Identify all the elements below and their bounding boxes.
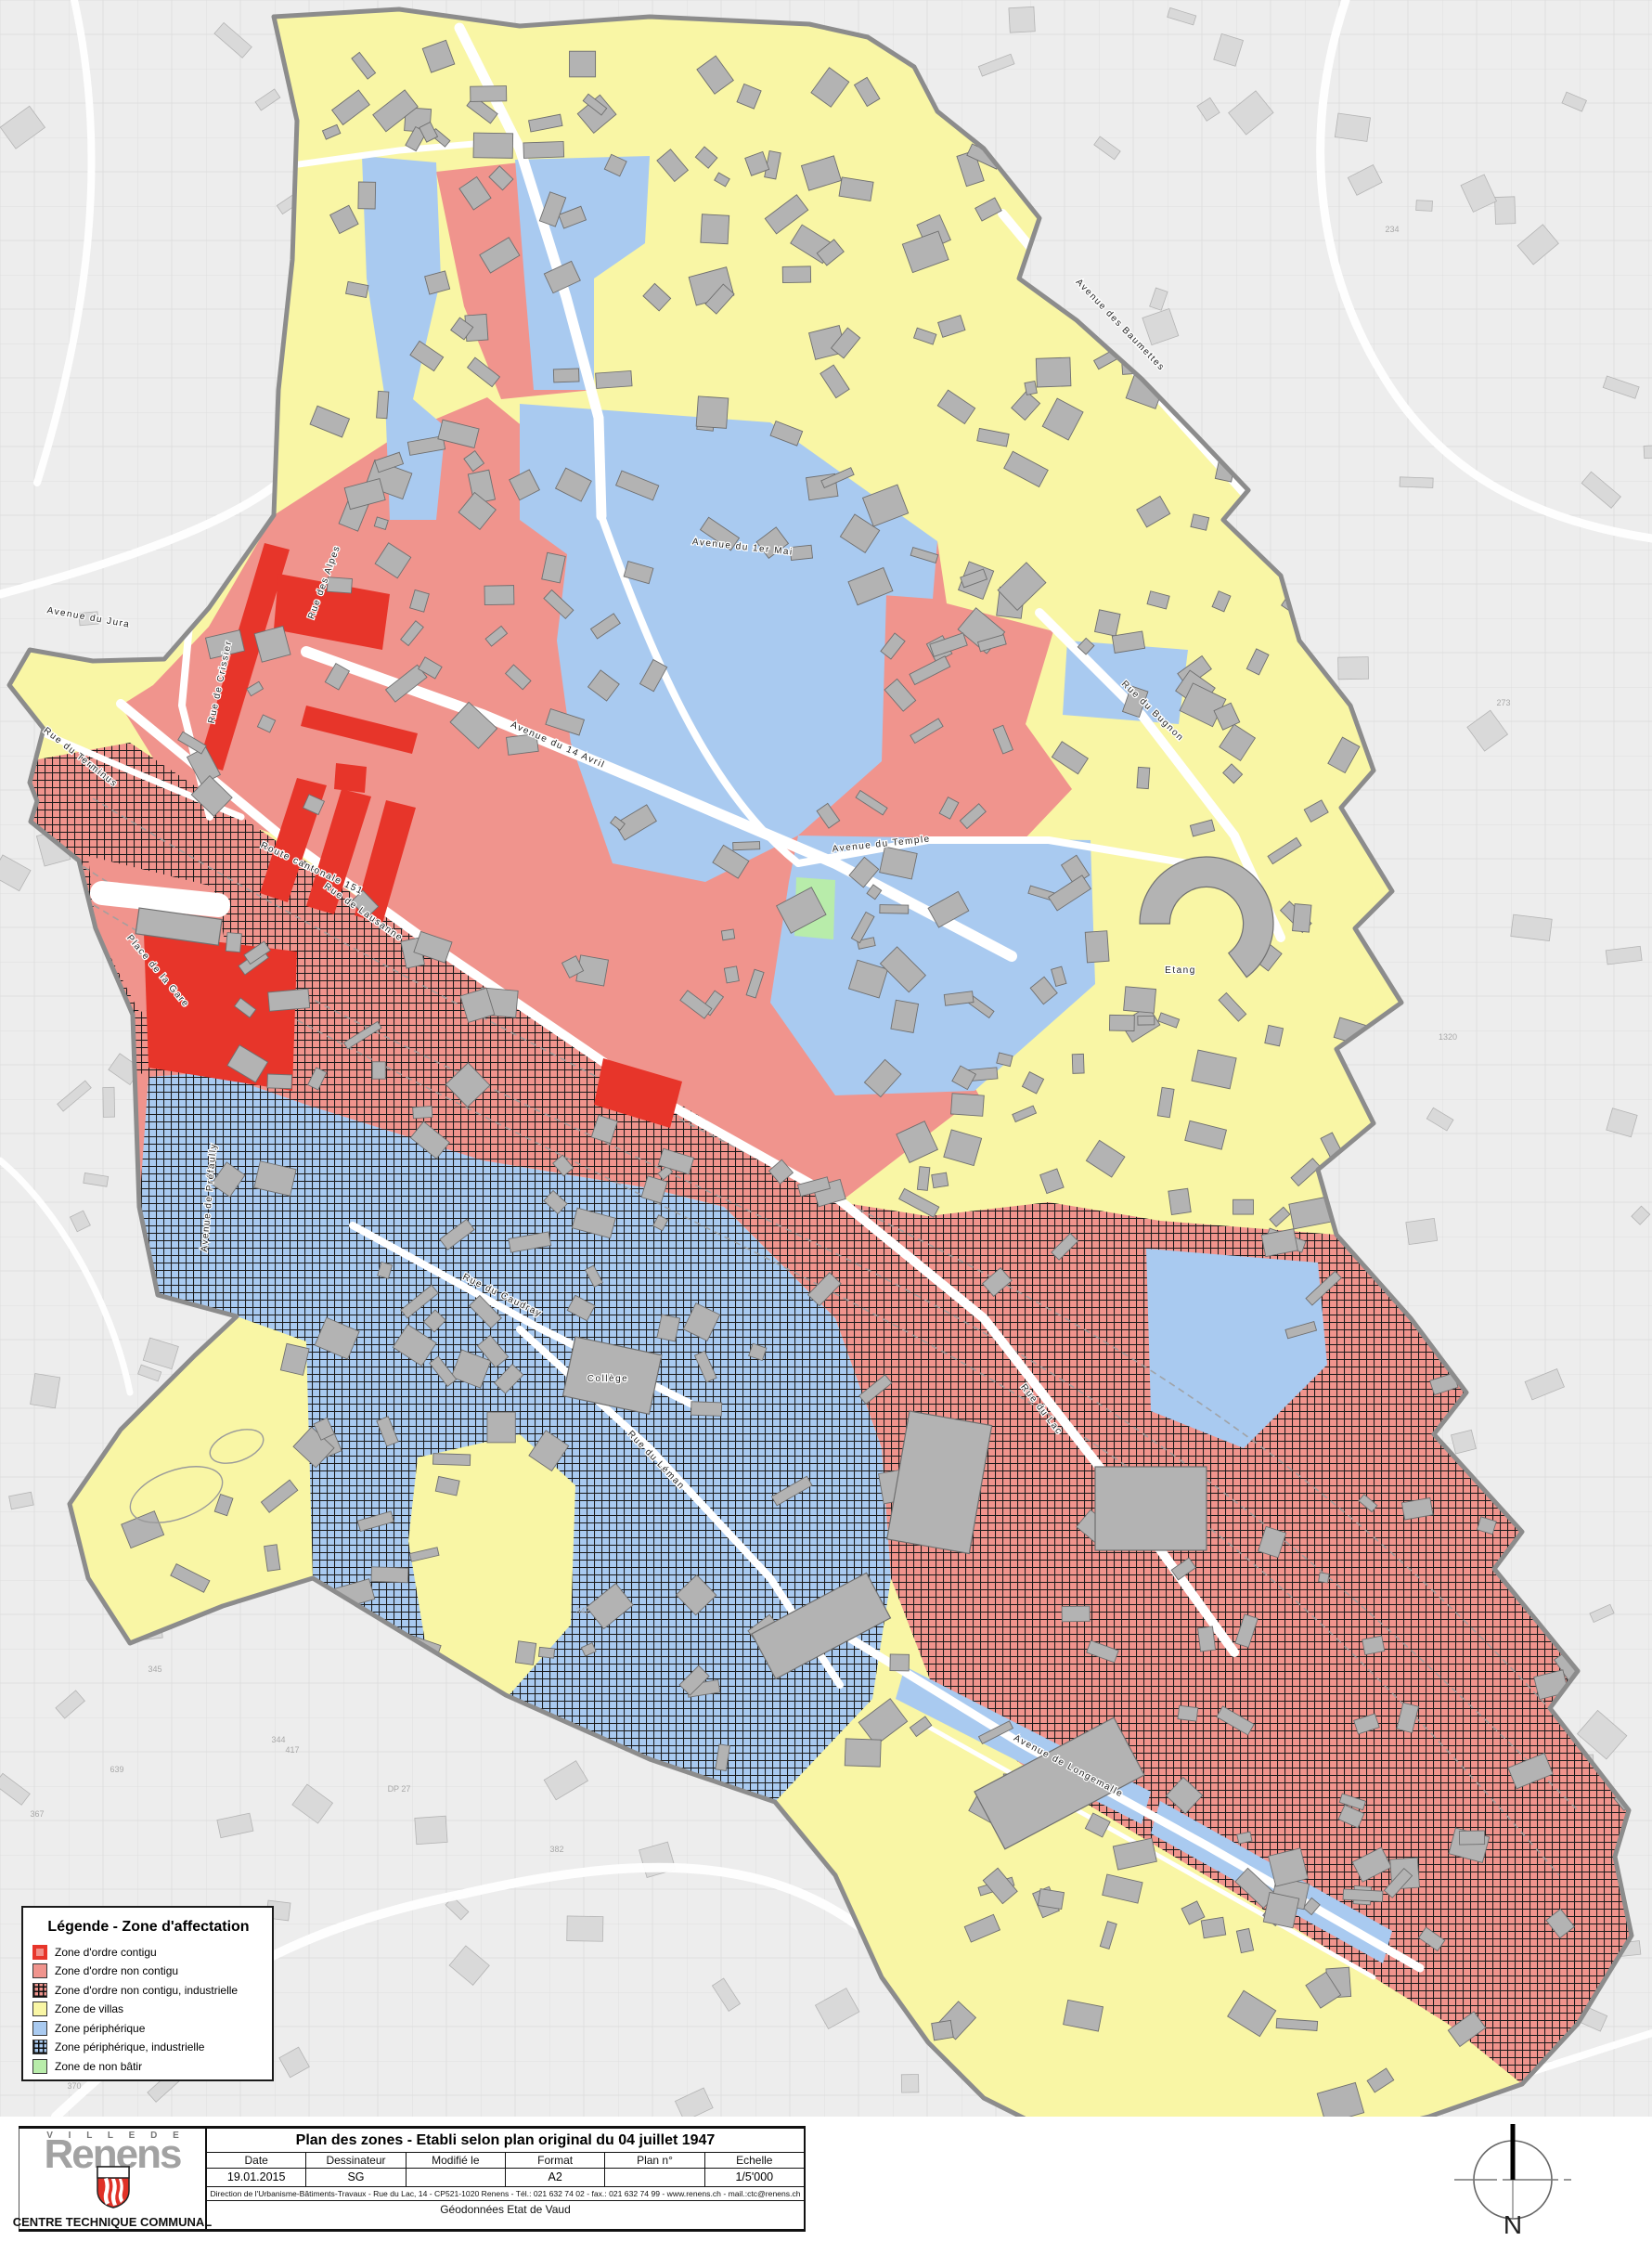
col-value: SG [306,2169,406,2186]
parcel-number: 342 [575,1606,589,1615]
legend-swatch-periph_industrielle [32,2040,47,2054]
title-block: V I L L E D E Renens CENTRE TECHNIQUE CO… [19,2126,806,2232]
legend-swatch-ordre_contigu [32,1945,47,1960]
legend-item-label: Zone d'ordre non contigu, industrielle [55,1984,238,1997]
parcel-number: 417 [285,1745,299,1755]
col-header: Plan n° [605,2153,704,2169]
logo-ctc-label: CENTRE TECHNIQUE COMMUNAL [13,2215,213,2229]
col-header: Dessinateur [306,2153,406,2169]
legend-item: Zone périphérique [32,2020,265,2036]
col-value [407,2169,506,2186]
col-header: Format [506,2153,605,2169]
parcel-number: 344 [271,1735,285,1744]
north-compass-icon: N [1443,2115,1592,2254]
legend-item: Zone d'ordre non contigu [32,1963,265,1979]
title-table-values: 19.01.2015SGA21/5'000 [207,2169,804,2186]
parcel-number: 273 [1496,698,1510,707]
legend-item-label: Zone d'ordre non contigu [55,1964,178,1977]
col-value: 1/5'000 [705,2169,804,2186]
parcel-number: 345 [148,1665,161,1674]
contigu-place [334,763,367,793]
legend-title: Légende - Zone d'affectation [32,1919,265,1936]
legend-item-label: Zone de villas [55,2002,123,2015]
legend-item-label: Zone d'ordre contigu [55,1946,157,1959]
col-value: 19.01.2015 [207,2169,306,2186]
legend-item: Zone de villas [32,2001,265,2017]
street-label: Etang [1165,965,1196,976]
legend-item: Zone périphérique, industrielle [32,2040,265,2055]
legend-item: Zone d'ordre non contigu, industrielle [32,1982,265,1998]
legend-swatch-peripherique [32,2021,47,2036]
zoning-map-canvas: Rue de LausanneRoute cantonale 151Avenue… [0,0,1652,2117]
parcel-number: 370 [67,2081,81,2091]
road [102,893,218,905]
legend-swatch-ordre_non_contigu [32,1963,47,1978]
legend-swatch-villas [32,2001,47,2016]
compass-n-label: N [1504,2210,1522,2239]
renens-coat-of-arms-icon [97,2166,130,2209]
col-value: A2 [506,2169,605,2186]
parcel-number: 1320 [1439,1032,1457,1042]
plan-title: Plan des zones - Etabli selon plan origi… [207,2129,804,2153]
parcel-number: 234 [1385,225,1399,234]
parcel-number: 367 [30,1809,44,1819]
plan-des-zones-page: Rue de LausanneRoute cantonale 151Avenue… [0,0,1652,2267]
geodata-credit: Géodonnées Etat de Vaud [207,2201,804,2219]
legend-item-label: Zone périphérique [55,2022,145,2035]
legend-box: Légende - Zone d'affectation Zone d'ordr… [21,1906,274,2081]
col-header: Modifié le [407,2153,506,2169]
legend-item: Zone de non bâtir [32,2058,265,2074]
legend-item-label: Zone périphérique, industrielle [55,2040,204,2053]
col-value [605,2169,704,2186]
street-label: Collège [587,1374,628,1384]
legend-swatch-ordre_nc_industrielle [32,1983,47,1998]
address-line: Direction de l'Urbanisme-Bâtiments-Trava… [207,2186,804,2201]
col-header: Date [207,2153,306,2169]
legend-item: Zone d'ordre contigu [32,1944,265,1960]
parcel-number: 639 [110,1765,123,1774]
title-table: Plan des zones - Etabli selon plan origi… [205,2129,806,2229]
parcel-number: DP 27 [388,1784,411,1794]
legend-item-label: Zone de non bâtir [55,2060,142,2073]
contigu-gare-sud [144,933,297,1091]
col-header: Echelle [705,2153,804,2169]
title-table-headers: DateDessinateurModifié leFormatPlan n°Ec… [207,2153,804,2169]
renens-logo: V I L L E D E Renens CENTRE TECHNIQUE CO… [19,2129,205,2229]
parcel-number: 382 [549,1845,563,1854]
legend-items: Zone d'ordre contiguZone d'ordre non con… [32,1944,265,2074]
legend-swatch-non_batir [32,2059,47,2074]
